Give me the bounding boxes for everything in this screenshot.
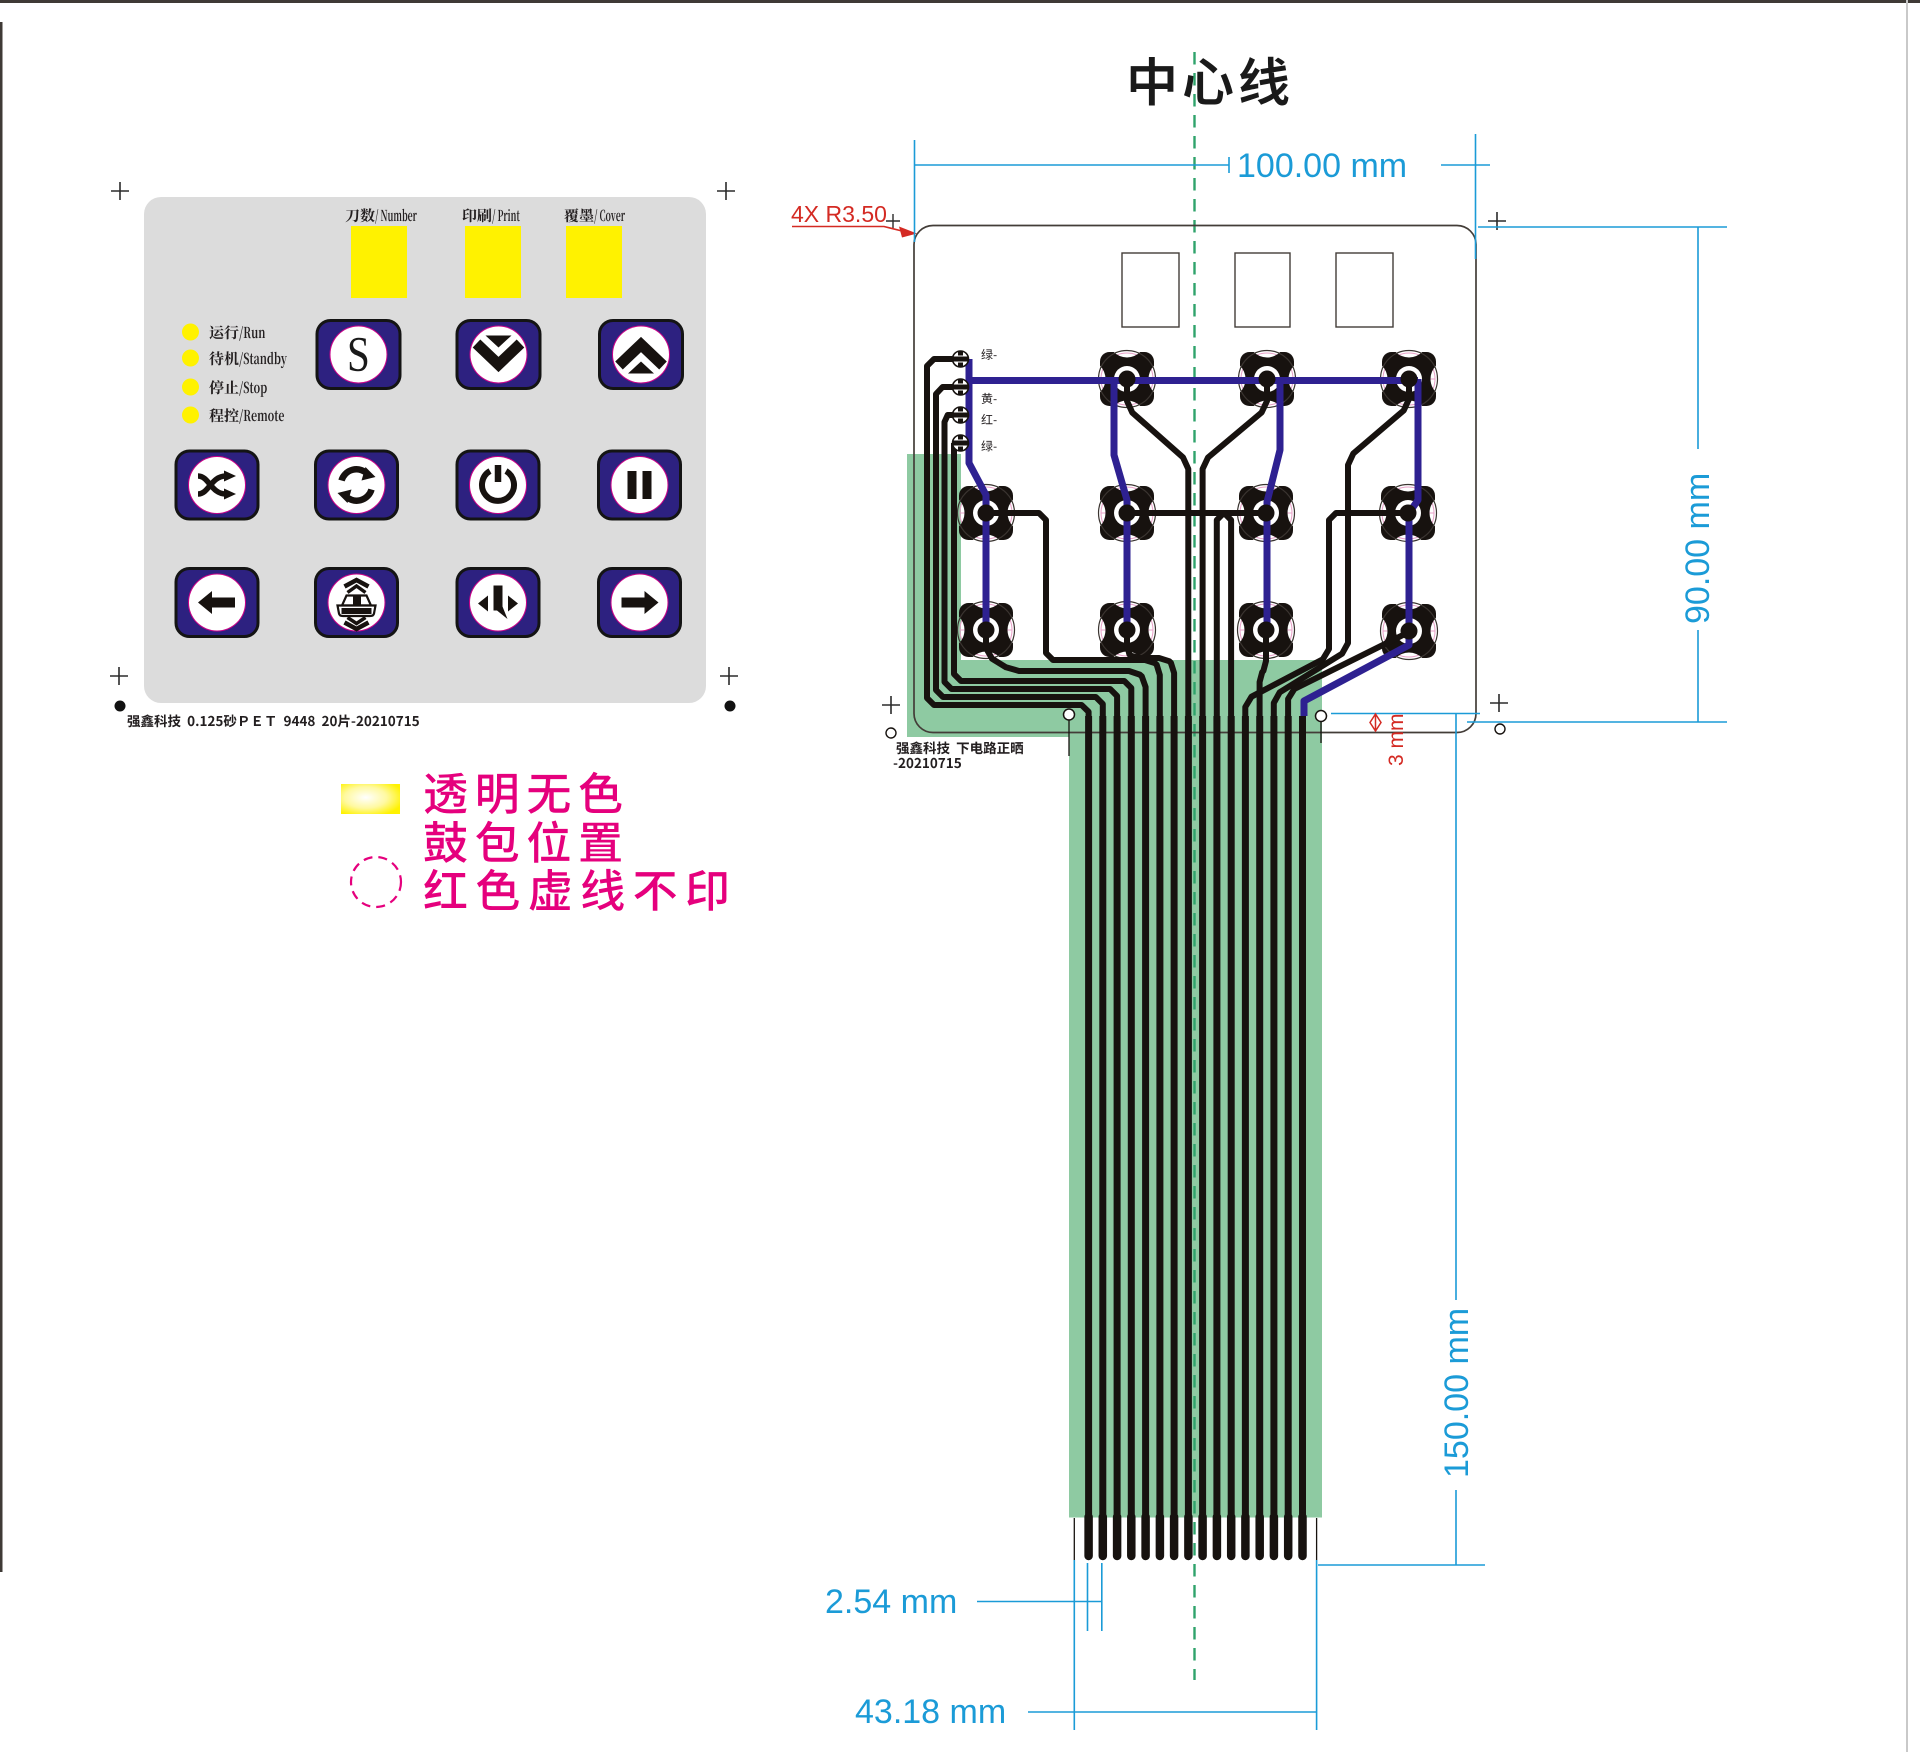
svg-text:43.18 mm: 43.18 mm (855, 1693, 1006, 1731)
svg-text:4X R3.50: 4X R3.50 (791, 201, 887, 227)
svg-text:90.00 mm: 90.00 mm (1679, 473, 1717, 624)
svg-text:100.00 mm: 100.00 mm (1237, 147, 1407, 185)
svg-text:3 mm: 3 mm (1385, 714, 1408, 767)
svg-text:150.00 mm: 150.00 mm (1438, 1308, 1476, 1478)
svg-text:2.54 mm: 2.54 mm (825, 1583, 957, 1621)
